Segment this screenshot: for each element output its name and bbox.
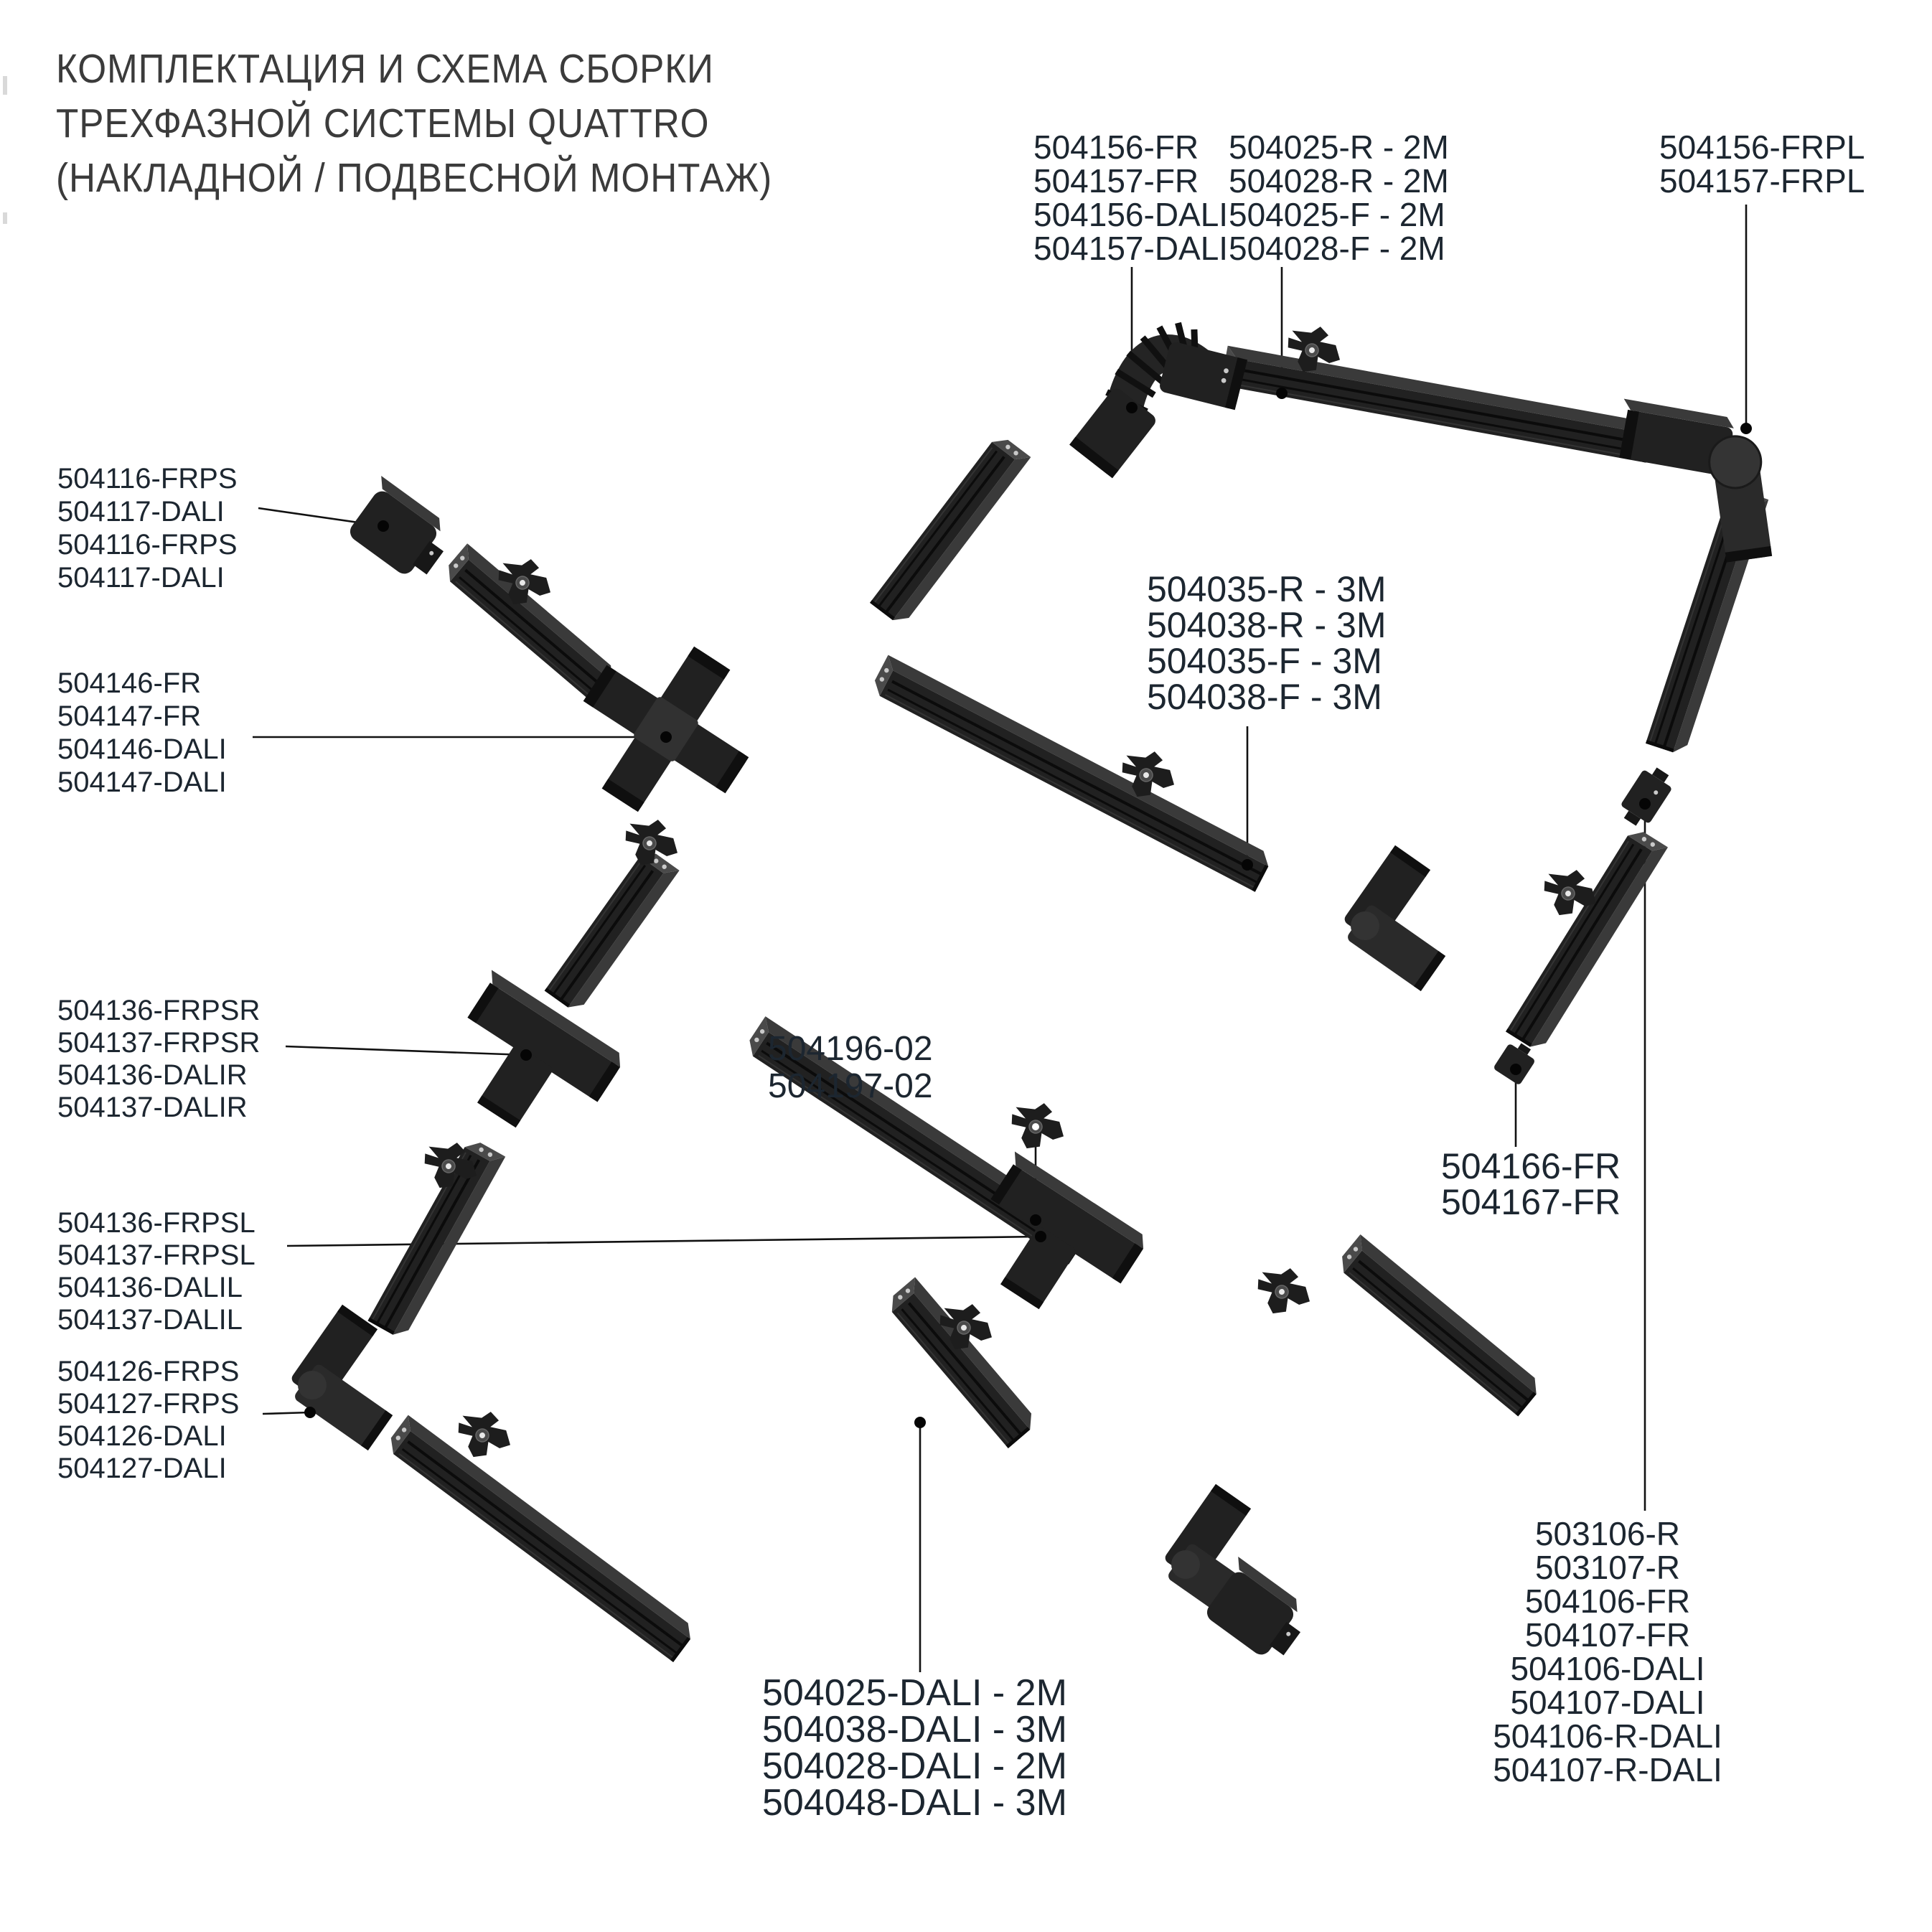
track-rail xyxy=(368,1137,506,1340)
part-number: 504166-FR xyxy=(1441,1148,1621,1184)
leader-dot xyxy=(304,1407,316,1418)
schematic-page: КОМПЛЕКТАЦИЯ И СХЕМА СБОРКИ ТРЕХФАЗНОЙ С… xyxy=(0,0,1932,1932)
part-number: 504136-FRPSR xyxy=(57,995,260,1027)
track-rail xyxy=(870,433,1031,627)
part-number: 504038-F - 3M xyxy=(1147,679,1387,715)
part-number: 504156-FRPL xyxy=(1659,131,1865,164)
part-number: 504038-DALI - 3M xyxy=(762,1712,1067,1748)
leader-dot xyxy=(1030,1214,1041,1226)
part-number: 504136-DALIR xyxy=(57,1059,260,1092)
flex-connector xyxy=(1069,322,1247,479)
part-number: 504127-FRPS xyxy=(57,1388,239,1420)
part-number: 504146-FR xyxy=(57,667,227,700)
leader-dot xyxy=(520,1049,532,1061)
part-number: 504126-DALI xyxy=(57,1420,239,1453)
clip-center-dot xyxy=(1032,1123,1039,1130)
part-number: 504048-DALI - 3M xyxy=(762,1785,1067,1821)
l-corner-connector xyxy=(290,1305,393,1450)
part-number: 504116-FRPS xyxy=(57,462,238,495)
hinged-corner-connector xyxy=(1599,399,1794,571)
part-number: 504025-DALI - 2M xyxy=(762,1675,1067,1712)
part-number: 504117-DALI xyxy=(57,495,238,528)
track-rail xyxy=(884,1277,1038,1448)
part-number: 504137-FRPSL xyxy=(57,1239,255,1272)
part-number: 504117-DALI xyxy=(57,561,238,594)
l-corner-connector xyxy=(1343,845,1446,991)
part-number: 504028-DALI - 2M xyxy=(762,1748,1067,1785)
part-number: 504106-FR xyxy=(1493,1585,1722,1618)
end-cap-connector xyxy=(342,476,458,586)
leader-line xyxy=(287,1237,1041,1246)
part-label-group-feed-l: 504156-FRPL504157-FRPL xyxy=(1659,131,1865,198)
part-number: 504136-FRPSL xyxy=(57,1207,255,1239)
part-number: 504137-DALIL xyxy=(57,1304,255,1336)
leader-line xyxy=(286,1046,526,1055)
part-number: 504157-DALI xyxy=(1033,232,1228,266)
part-label-group-track-dali: 504025-DALI - 2M504038-DALI - 3M504028-D… xyxy=(762,1675,1067,1821)
track-rail xyxy=(1221,346,1654,463)
part-number: 504147-DALI xyxy=(57,766,227,799)
part-label-group-corner: 504126-FRPS504127-FRPS504126-DALI504127-… xyxy=(57,1356,239,1485)
track-rail xyxy=(545,847,680,1013)
part-number: 504136-DALIL xyxy=(57,1272,255,1304)
leader-dot xyxy=(1740,423,1752,434)
leader-dot xyxy=(1639,798,1651,810)
part-label-group-clip-166: 504166-FR504167-FR xyxy=(1441,1148,1621,1220)
part-number: 504038-R - 3M xyxy=(1147,607,1387,643)
t-connector xyxy=(427,970,627,1157)
part-number: 504126-FRPS xyxy=(57,1356,239,1388)
leader-dot xyxy=(378,520,389,532)
track-rail xyxy=(1506,826,1668,1053)
track-rail xyxy=(384,1415,697,1662)
part-number: 504196-02 xyxy=(768,1031,933,1068)
leader-line xyxy=(263,1412,310,1414)
leader-dot xyxy=(1126,402,1138,413)
mounting-clip xyxy=(1247,1257,1319,1327)
part-number: 504107-DALI xyxy=(1493,1686,1722,1720)
part-number: 504035-F - 3M xyxy=(1147,643,1387,679)
part-label-group-clip-196: 504196-02504197-02 xyxy=(768,1031,933,1105)
part-number: 504106-DALI xyxy=(1493,1652,1722,1686)
part-number: 504197-02 xyxy=(768,1068,933,1105)
track-rail xyxy=(1335,1234,1544,1416)
part-number: 503107-R xyxy=(1493,1551,1722,1585)
part-number: 504025-R - 2M xyxy=(1229,131,1449,164)
part-number: 503106-R xyxy=(1493,1517,1722,1551)
leader-dot xyxy=(1510,1064,1521,1075)
part-number: 504107-R-DALI xyxy=(1493,1753,1722,1787)
part-label-group-track-3m: 504035-R - 3M504038-R - 3M504035-F - 3M5… xyxy=(1147,571,1387,715)
part-label-group-endcap: 504116-FRPS504117-DALI504116-FRPS504117-… xyxy=(57,462,238,594)
leader-dot xyxy=(660,731,672,743)
part-number: 504137-DALIR xyxy=(57,1092,260,1124)
part-number: 504127-DALI xyxy=(57,1453,239,1485)
leader-dot xyxy=(914,1417,926,1428)
part-number: 504137-FRPSR xyxy=(57,1027,260,1059)
part-number: 504107-FR xyxy=(1493,1618,1722,1652)
part-label-group-feed-top: 504156-FR504157-FR504156-DALI504157-DALI xyxy=(1033,131,1228,266)
part-number: 504156-FR xyxy=(1033,131,1228,164)
part-label-group-x-conn: 504146-FR504147-FR504146-DALI504147-DALI xyxy=(57,667,227,799)
part-number: 504157-FRPL xyxy=(1659,164,1865,198)
leader-dot xyxy=(1276,388,1288,399)
part-label-group-mini-conn: 503106-R503107-R504106-FR504107-FR504106… xyxy=(1493,1517,1722,1787)
part-label-group-t-right: 504136-FRPSR504137-FRPSR504136-DALIR5041… xyxy=(57,995,260,1124)
part-label-group-track-2m: 504025-R - 2M504028-R - 2M504025-F - 2M5… xyxy=(1229,131,1449,266)
leader-dot xyxy=(1242,859,1253,871)
part-number: 504147-FR xyxy=(57,700,227,733)
part-number: 504106-R-DALI xyxy=(1493,1720,1722,1753)
part-number: 504028-F - 2M xyxy=(1229,232,1449,266)
leader-dot xyxy=(1035,1231,1046,1242)
part-number: 504167-FR xyxy=(1441,1184,1621,1220)
part-number: 504146-DALI xyxy=(57,733,227,766)
part-label-group-t-left: 504136-FRPSL504137-FRPSL504136-DALIL5041… xyxy=(57,1207,255,1336)
mini-straight-connector xyxy=(1616,762,1677,832)
part-number: 504116-FRPS xyxy=(57,528,238,561)
part-number: 504028-R - 2M xyxy=(1229,164,1449,198)
part-number: 504157-FR xyxy=(1033,164,1228,198)
part-number: 504035-R - 3M xyxy=(1147,571,1387,607)
part-number: 504156-DALI xyxy=(1033,198,1228,232)
part-number: 504025-F - 2M xyxy=(1229,198,1449,232)
